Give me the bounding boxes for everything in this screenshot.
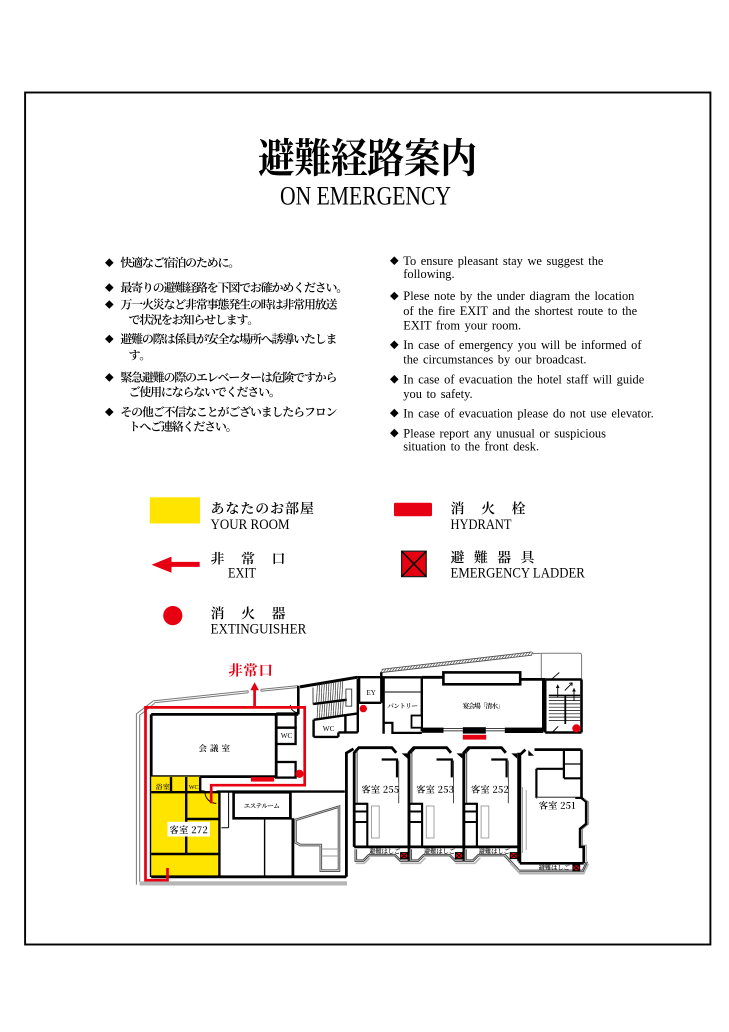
svg-text:In case of emergency you will: In case of emergency you will be informe… bbox=[403, 338, 642, 352]
svg-text:WC: WC bbox=[323, 725, 335, 733]
svg-text:situation to the front desk.: situation to the front desk. bbox=[403, 440, 539, 454]
svg-text:the circumstances by our broad: the circumstances by our broadcast. bbox=[403, 353, 586, 367]
svg-text:In case of evacuation please d: In case of evacuation please do not use … bbox=[403, 406, 653, 420]
svg-text:WC: WC bbox=[281, 732, 293, 740]
svg-text:EXTINGUISHER: EXTINGUISHER bbox=[211, 622, 307, 638]
svg-text:EXIT: EXIT bbox=[228, 566, 256, 582]
svg-text:WC: WC bbox=[189, 784, 199, 791]
svg-text:of the fire EXIT and the short: of the fire EXIT and the shortest route … bbox=[403, 304, 637, 318]
svg-text:Please report any unusual or s: Please report any unusual or suspicious bbox=[403, 426, 606, 440]
svg-text:EXIT from your room.: EXIT from your room. bbox=[403, 318, 521, 332]
svg-text:following.: following. bbox=[403, 267, 454, 281]
svg-text:In case of evacuation the hote: In case of evacuation the hotel staff wi… bbox=[403, 373, 644, 387]
svg-text:HYDRANT: HYDRANT bbox=[451, 517, 512, 533]
svg-text:ON EMERGENCY: ON EMERGENCY bbox=[280, 181, 451, 211]
svg-text:To ensure pleasant stay we sug: To ensure pleasant stay we suggest the bbox=[403, 254, 604, 268]
svg-text:you to safety.: you to safety. bbox=[403, 387, 472, 401]
svg-text:YOUR ROOM: YOUR ROOM bbox=[211, 517, 290, 533]
svg-text:Plese note by the under diagra: Plese note by the under diagram the loca… bbox=[403, 289, 634, 303]
svg-text:EY: EY bbox=[367, 689, 376, 697]
svg-text:EMERGENCY LADDER: EMERGENCY LADDER bbox=[451, 566, 586, 582]
